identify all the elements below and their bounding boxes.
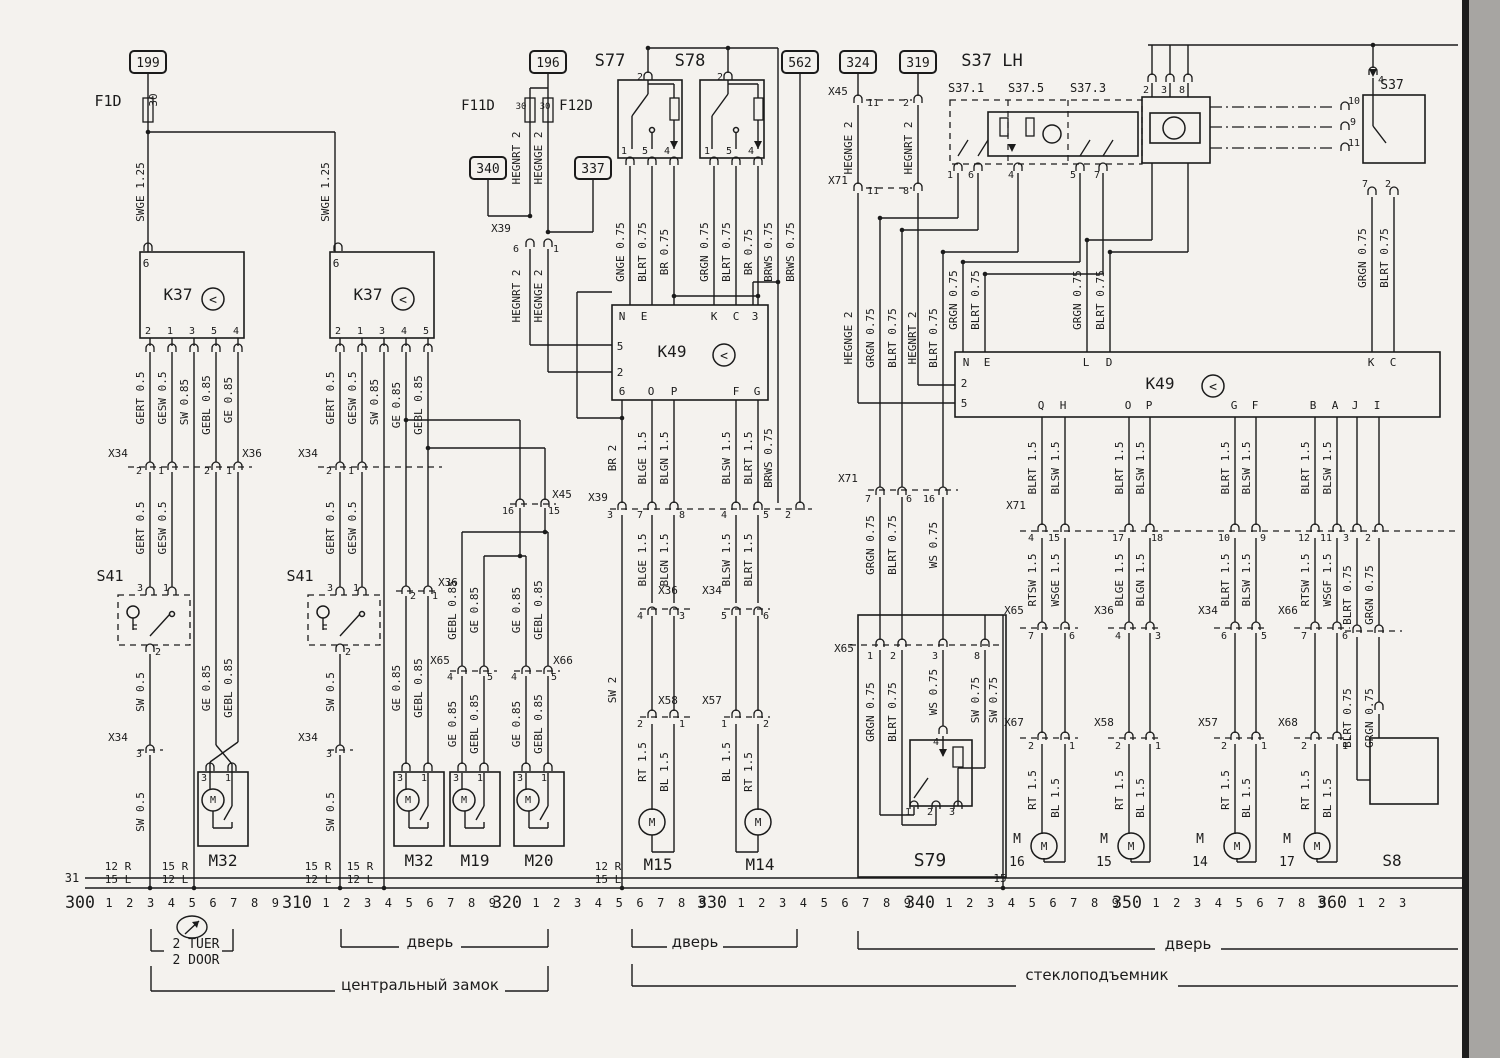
wire-label: GE 0.85 xyxy=(510,587,523,633)
diagram-label: X36 xyxy=(242,447,262,460)
grid-number: 8 xyxy=(678,896,685,910)
wire-label: WS 0.75 xyxy=(927,669,940,715)
grid-number: 4 xyxy=(800,896,807,910)
wire-label: BLSW 1.5 xyxy=(1240,554,1253,607)
wire-label: GRGN 0.75 xyxy=(947,270,960,330)
diagram-label: S37.3 xyxy=(1070,81,1106,95)
grid-number: 4 xyxy=(595,896,602,910)
relay-arrow-icon: < xyxy=(399,293,407,308)
diagram-label: 15 xyxy=(1048,533,1060,544)
diagram-label: 8 xyxy=(1179,85,1185,96)
diagram-label: X39 xyxy=(491,222,511,235)
wire-label: GE 0.85 xyxy=(200,665,213,711)
reference-number: 337 xyxy=(581,162,604,177)
diagram-label: 30 xyxy=(540,102,551,112)
diagram-label: 2 xyxy=(890,651,896,662)
grid-number: 1 xyxy=(945,896,952,910)
wire-label: BLRT 0.75 xyxy=(636,222,649,282)
diagram-label: 6 xyxy=(143,257,150,270)
diagram-label: M19 xyxy=(461,851,490,870)
diagram-label: J xyxy=(1352,399,1359,412)
wire-label: RTSW 1.5 xyxy=(1026,554,1039,607)
diagram-label: X65 xyxy=(834,642,854,655)
diagram-label: 1 xyxy=(1155,741,1161,752)
diagram-label: 4 xyxy=(401,326,407,337)
diagram-label: 2 xyxy=(145,326,151,337)
reference-number: 340 xyxy=(476,162,499,177)
wire-label: SW 0.85 xyxy=(368,379,381,425)
diagram-label: 15 R xyxy=(162,860,189,873)
grid-number: 5 xyxy=(616,896,623,910)
diagram-label: M xyxy=(1128,840,1135,853)
grid-number: 2 xyxy=(126,896,133,910)
grid-number: 8 xyxy=(1298,896,1305,910)
wire-label: WS 0.75 xyxy=(927,522,940,568)
diagram-label: 15 L xyxy=(105,873,132,886)
wire-label: BLRT 1.5 xyxy=(1113,442,1126,495)
wire-label: HEGNGE 2 xyxy=(532,132,545,185)
diagram-label: N xyxy=(619,310,626,323)
reference-number: 324 xyxy=(846,56,870,71)
wire-label: BL 1.5 xyxy=(1240,778,1253,818)
diagram-label: 3 xyxy=(327,583,333,594)
wire-label: GRGN 0.75 xyxy=(1363,565,1376,625)
diagram-label: 1 xyxy=(348,466,354,477)
diagram-label: 1 xyxy=(357,326,363,337)
wire-label: BL 1.5 xyxy=(1049,778,1062,818)
grid-number: 4 xyxy=(1215,896,1222,910)
wire-label: RTSW 1.5 xyxy=(1299,554,1312,607)
diagram-label: 12 R xyxy=(105,860,132,873)
diagram-label: 4 xyxy=(1008,170,1014,181)
diagram-label: 1 xyxy=(1342,741,1348,752)
junction-dot xyxy=(620,886,625,891)
diagram-label: C xyxy=(733,310,740,323)
wire-label: BL 1.5 xyxy=(1134,778,1147,818)
junction-dot xyxy=(961,260,966,265)
wire-label: BLRT 0.75 xyxy=(1341,565,1354,625)
grid-number: 9 xyxy=(272,896,279,910)
section-label: дверь xyxy=(672,933,719,951)
diagram-label: X67 xyxy=(1004,716,1024,729)
wire-label: GRGN 0.75 xyxy=(698,222,711,282)
diagram-label: M xyxy=(1283,832,1291,847)
diagram-label: L xyxy=(1083,356,1090,369)
wire-label: BLRT 0.75 xyxy=(1094,270,1107,330)
diagram-label: D xyxy=(1106,356,1113,369)
wire-label: SWGE 1.25 xyxy=(134,162,147,222)
diagram-label: 6 xyxy=(1069,631,1075,642)
diagram-label: 2 xyxy=(785,510,791,521)
diagram-label: 5 xyxy=(423,326,429,337)
diagram-label: 5 xyxy=(487,672,493,683)
diagram-label: X71 xyxy=(828,174,848,187)
diagram-label: M xyxy=(1314,840,1321,853)
wire-label: GRGN 0.75 xyxy=(1356,228,1369,288)
diagram-label: M15 xyxy=(644,855,673,874)
diagram-label: 4 xyxy=(664,146,670,157)
diagram-label: X71 xyxy=(1006,499,1026,512)
diagram-label: 3 xyxy=(752,310,759,323)
junction-dot xyxy=(941,250,946,255)
diagram-label: 2 xyxy=(1028,741,1034,752)
junction-dot xyxy=(1085,238,1090,243)
diagram-label: 12 L xyxy=(347,873,374,886)
diagram-label: 12 xyxy=(1298,533,1310,544)
diagram-label: S8 xyxy=(1382,851,1401,870)
wire-label: RT 1.5 xyxy=(1299,770,1312,810)
wire-label: GERT 0.5 xyxy=(134,502,147,555)
diagram-label: 17 xyxy=(1279,855,1295,870)
diagram-label: Q xyxy=(1038,399,1045,412)
diagram-label: 3 xyxy=(136,749,142,760)
junction-dot xyxy=(1001,886,1006,891)
wire-label: WSGE 1.5 xyxy=(1049,554,1062,607)
wire-label: GEBL 0.85 xyxy=(412,658,425,718)
diagram-label: 5 xyxy=(763,510,769,521)
junction-dot xyxy=(404,418,409,423)
diagram-label: 2 xyxy=(763,719,769,730)
grid-number: 4 xyxy=(385,896,392,910)
wire-label: GEBL 0.85 xyxy=(468,694,481,754)
wire-label: GRGN 0.75 xyxy=(864,308,877,368)
wire-label: BLSW 1.5 xyxy=(720,534,733,587)
diagram-label: 10 xyxy=(1348,96,1360,107)
diagram-label: 1 xyxy=(163,583,169,594)
junction-dot xyxy=(382,886,387,891)
diagram-label: 3 xyxy=(517,773,523,784)
diagram-label: 15 L xyxy=(595,873,622,886)
diagram-label: 2 xyxy=(903,98,909,109)
junction-dot xyxy=(426,446,431,451)
diagram-label: 1 xyxy=(541,773,547,784)
junction-dot xyxy=(983,272,988,277)
diagram-label: 2 xyxy=(717,72,723,83)
diagram-label: K xyxy=(711,310,718,323)
diagram-label: X36 xyxy=(658,584,678,597)
grid-number: 4 xyxy=(1008,896,1015,910)
junction-dot xyxy=(1371,43,1376,48)
diagram-label: 2 xyxy=(637,719,643,730)
junction-dot xyxy=(543,530,548,535)
grid-number: 7 xyxy=(1277,896,1284,910)
wire-label: BLRT 0.75 xyxy=(927,308,940,368)
diagram-label: M xyxy=(649,816,656,829)
diagram-label: 6 xyxy=(1221,631,1227,642)
diagram-label: 5 xyxy=(961,397,968,410)
grid-number: 3 xyxy=(779,896,786,910)
junction-dot xyxy=(148,886,153,891)
reference-number: 319 xyxy=(906,56,929,71)
grid-number: 1 xyxy=(1357,896,1364,910)
reference-number: 562 xyxy=(788,56,811,71)
wiring-diagram-canvas: 199196340337562324319<<<<SWGE 1.25SWGE 1… xyxy=(0,0,1500,1058)
diagram-label: 1 xyxy=(158,466,164,477)
junction-dot xyxy=(192,886,197,891)
grid-number: 6 xyxy=(426,896,433,910)
grid-number-major: 340 xyxy=(905,893,935,912)
wire-label: BLRT 1.5 xyxy=(1219,554,1232,607)
diagram-label: 2 xyxy=(637,72,643,83)
wire-label: BLSW 1.5 xyxy=(1321,442,1334,495)
wire-label: GRGN 0.75 xyxy=(1071,270,1084,330)
grid-number: 8 xyxy=(468,896,475,910)
grid-number: 3 xyxy=(574,896,581,910)
grid-number: 8 xyxy=(1091,896,1098,910)
junction-dot xyxy=(878,216,883,221)
wire-label: GNGE 0.75 xyxy=(614,222,627,282)
diagram-label: X34 xyxy=(702,584,722,597)
diagram-label: 4 xyxy=(233,326,239,337)
grid-number: 3 xyxy=(1399,896,1406,910)
junction-dot xyxy=(528,214,533,219)
wire-label: GEBL 0.85 xyxy=(532,580,545,640)
wire-label: GE 0.85 xyxy=(510,701,523,747)
wire-label: HEGNRT 2 xyxy=(510,132,523,185)
wire-label: BR 0.75 xyxy=(658,229,671,275)
diagram-label: M xyxy=(1041,840,1048,853)
diagram-label: 8 xyxy=(974,651,980,662)
wire-label: SW 0.5 xyxy=(324,672,337,712)
wire-label: SW 0.85 xyxy=(178,379,191,425)
diagram-label: 3 xyxy=(453,773,459,784)
diagram-label: M xyxy=(1013,832,1021,847)
grid-number: 8 xyxy=(883,896,890,910)
section-label: дверь xyxy=(1165,935,1212,953)
diagram-label: 11 xyxy=(867,186,879,197)
wire-label: SW 0.5 xyxy=(134,672,147,712)
diagram-label: 17 xyxy=(1112,533,1124,544)
grid-number: 6 xyxy=(1049,896,1056,910)
diagram-label: 12 L xyxy=(162,873,189,886)
diagram-label: M xyxy=(525,795,531,806)
diagram-label: 1 xyxy=(167,326,173,337)
diagram-label: 2 xyxy=(204,466,210,477)
wire-label: GRGN 0.75 xyxy=(864,682,877,742)
grid-number: 1 xyxy=(1152,896,1159,910)
wire-label: SW 2 xyxy=(606,677,619,704)
diagram-label: K49 xyxy=(1146,374,1175,393)
wire-label: GRGN 0.75 xyxy=(864,515,877,575)
diagram-label: X65 xyxy=(1004,604,1024,617)
grid-number: 7 xyxy=(862,896,869,910)
diagram-label: O xyxy=(648,385,655,398)
page-edge-shadow xyxy=(1462,0,1469,1058)
diagram-label: 15 R xyxy=(305,860,332,873)
grid-number: 5 xyxy=(1029,896,1036,910)
reference-number: 199 xyxy=(136,56,159,71)
grid-number: 7 xyxy=(447,896,454,910)
diagram-label: 2 xyxy=(410,591,416,602)
diagram-label: M32 xyxy=(405,851,434,870)
diagram-label: M xyxy=(1196,832,1204,847)
diagram-label: S41 xyxy=(286,567,313,585)
diagram-label: 11 xyxy=(1320,533,1332,544)
wire-label: BLRT 0.75 xyxy=(886,682,899,742)
diagram-label: 2 xyxy=(1115,741,1121,752)
wire-label: SW 0.5 xyxy=(324,792,337,832)
diagram-label: 12 R xyxy=(595,860,622,873)
wire-label: GESW 0.5 xyxy=(156,502,169,555)
diagram-label: N xyxy=(963,356,970,369)
diagram-label: 1 xyxy=(421,773,427,784)
grid-number-major: 320 xyxy=(492,893,522,912)
grid-number: 3 xyxy=(147,896,154,910)
diagram-label: 15 xyxy=(993,872,1006,885)
grid-number: 7 xyxy=(657,896,664,910)
relay-arrow-icon: < xyxy=(209,293,217,308)
diagram-label: 4 xyxy=(1378,75,1384,86)
junction-dot xyxy=(518,554,523,559)
wire-label: RT 1.5 xyxy=(1219,770,1232,810)
diagram-label: 3 xyxy=(679,611,685,622)
wire-label: 30 xyxy=(147,93,160,106)
wire-label: GEBL 0.85 xyxy=(200,375,213,435)
wire-label: BR 2 xyxy=(606,445,619,472)
diagram-label: X58 xyxy=(1094,716,1114,729)
wire-label: GERT 0.5 xyxy=(134,372,147,425)
diagram-label: 1 xyxy=(867,651,873,662)
grid-number: 6 xyxy=(209,896,216,910)
diagram-label: F xyxy=(733,385,740,398)
section-label: центральный замок xyxy=(341,976,499,994)
diagram-label: 12 L xyxy=(305,873,332,886)
wire-label: SWGE 1.25 xyxy=(319,162,332,222)
wire-label: GE 0.85 xyxy=(390,382,403,428)
junction-dot xyxy=(672,294,677,299)
wire-label: HEGNGE 2 xyxy=(842,312,855,365)
diagram-label: X34 xyxy=(1198,604,1218,617)
diagram-label: X57 xyxy=(1198,716,1218,729)
diagram-label: 3 xyxy=(326,749,332,760)
diagram-label: 11 xyxy=(867,98,879,109)
wire-label: RT 1.5 xyxy=(742,752,755,792)
wire-label: BLSW 1.5 xyxy=(720,432,733,485)
diagram-label: S77 xyxy=(595,51,626,71)
wire-label: BLGE 1.5 xyxy=(636,534,649,587)
diagram-label: 7 xyxy=(1301,631,1307,642)
diagram-label: 15 xyxy=(548,506,560,517)
wire-label: BRWS 0.75 xyxy=(762,428,775,488)
diagram-label: 3 xyxy=(379,326,385,337)
diagram-label: 2 xyxy=(136,466,142,477)
section-label: дверь xyxy=(407,933,454,951)
diagram-label: M xyxy=(405,795,411,806)
wire-label: BRWS 0.75 xyxy=(784,222,797,282)
diagram-label: M xyxy=(1234,840,1241,853)
diagram-label: X36 xyxy=(438,576,458,589)
grid-number: 5 xyxy=(189,896,196,910)
grid-number: 5 xyxy=(406,896,413,910)
wire-label: RT 1.5 xyxy=(636,742,649,782)
diagram-label: 1 xyxy=(721,719,727,730)
wire-label: GEBL 0.85 xyxy=(412,375,425,435)
grid-number: 4 xyxy=(168,896,175,910)
junction-dot xyxy=(646,46,651,51)
wire-label: BL 1.5 xyxy=(658,752,671,792)
diagram-label: X57 xyxy=(702,694,722,707)
grid-number: 3 xyxy=(1194,896,1201,910)
wire-label: BLGE 1.5 xyxy=(636,432,649,485)
diagram-label: 3 xyxy=(189,326,195,337)
junction-dot xyxy=(756,294,761,299)
wire-label: GE 0.85 xyxy=(222,377,235,423)
grid-number: 2 xyxy=(553,896,560,910)
diagram-label: A xyxy=(1332,399,1339,412)
diagram-label: X36 xyxy=(1094,604,1114,617)
wire-label: BRWS 0.75 xyxy=(762,222,775,282)
diagram-label: K xyxy=(1368,356,1375,369)
grid-number-major: 360 xyxy=(1317,893,1347,912)
diagram-label: 2 DOOR xyxy=(173,953,220,968)
diagram-label: E xyxy=(641,310,648,323)
diagram-label: 1 xyxy=(905,807,911,818)
wire-label: GERT 0.5 xyxy=(324,372,337,425)
wire-label: BLGE 1.5 xyxy=(1113,554,1126,607)
wire-label: WSGF 1.5 xyxy=(1321,554,1334,607)
diagram-label: S79 xyxy=(914,850,947,871)
diagram-label: X39 xyxy=(588,491,608,504)
diagram-label: 3 xyxy=(1161,85,1167,96)
wire-label: BLRT 1.5 xyxy=(742,534,755,587)
diagram-label: 5 xyxy=(211,326,217,337)
grid-number-major: 310 xyxy=(282,893,312,912)
junction-dot xyxy=(900,228,905,233)
junction-dot xyxy=(726,46,731,51)
diagram-label: M xyxy=(1100,832,1108,847)
diagram-label: K49 xyxy=(658,342,687,361)
wiring-diagram-page: 199196340337562324319<<<<SWGE 1.25SWGE 1… xyxy=(0,0,1500,1058)
diagram-label: 2 xyxy=(961,377,968,390)
junction-dot xyxy=(546,230,551,235)
wire-label: BR 0.75 xyxy=(742,229,755,275)
diagram-label: 16 xyxy=(923,494,935,505)
grid-number: 1 xyxy=(322,896,329,910)
diagram-label: 1 xyxy=(225,773,231,784)
grid-number: 1 xyxy=(105,896,112,910)
wire-label: BLRT 1.5 xyxy=(742,432,755,485)
diagram-label: 5 xyxy=(1261,631,1267,642)
diagram-label: S37.5 xyxy=(1008,81,1044,95)
diagram-label: 4 xyxy=(1115,631,1121,642)
wire-label: HEGNGE 2 xyxy=(842,122,855,175)
grid-number-major: 350 xyxy=(1112,893,1142,912)
diagram-label: 2 xyxy=(1301,741,1307,752)
wire-label: BLSW 1.5 xyxy=(1134,442,1147,495)
diagram-label: 1 xyxy=(1069,741,1075,752)
wire-label: GESW 0.5 xyxy=(346,372,359,425)
wire-label: BLSW 1.5 xyxy=(1049,442,1062,495)
diagram-label: O xyxy=(1125,399,1132,412)
diagram-label: K37 xyxy=(164,285,193,304)
diagram-label: 5 xyxy=(617,340,624,353)
wire-label: GESW 0.5 xyxy=(346,502,359,555)
wire-label: GERT 0.5 xyxy=(324,502,337,555)
diagram-label: 5 xyxy=(721,611,727,622)
diagram-label: 5 xyxy=(642,146,648,157)
diagram-label: 6 xyxy=(1342,631,1348,642)
diagram-label: 3 xyxy=(137,583,143,594)
diagram-label: 2 xyxy=(1365,533,1371,544)
diagram-label: 1 xyxy=(477,773,483,784)
diagram-label: F12D xyxy=(559,98,593,114)
wire-label: GRGN 0.75 xyxy=(1363,688,1376,748)
diagram-label: X66 xyxy=(553,654,573,667)
diagram-label: 4 xyxy=(748,146,754,157)
diagram-label: 2 xyxy=(1143,85,1149,96)
wire-label: GESW 0.5 xyxy=(156,372,169,425)
diagram-label: 3 xyxy=(397,773,403,784)
